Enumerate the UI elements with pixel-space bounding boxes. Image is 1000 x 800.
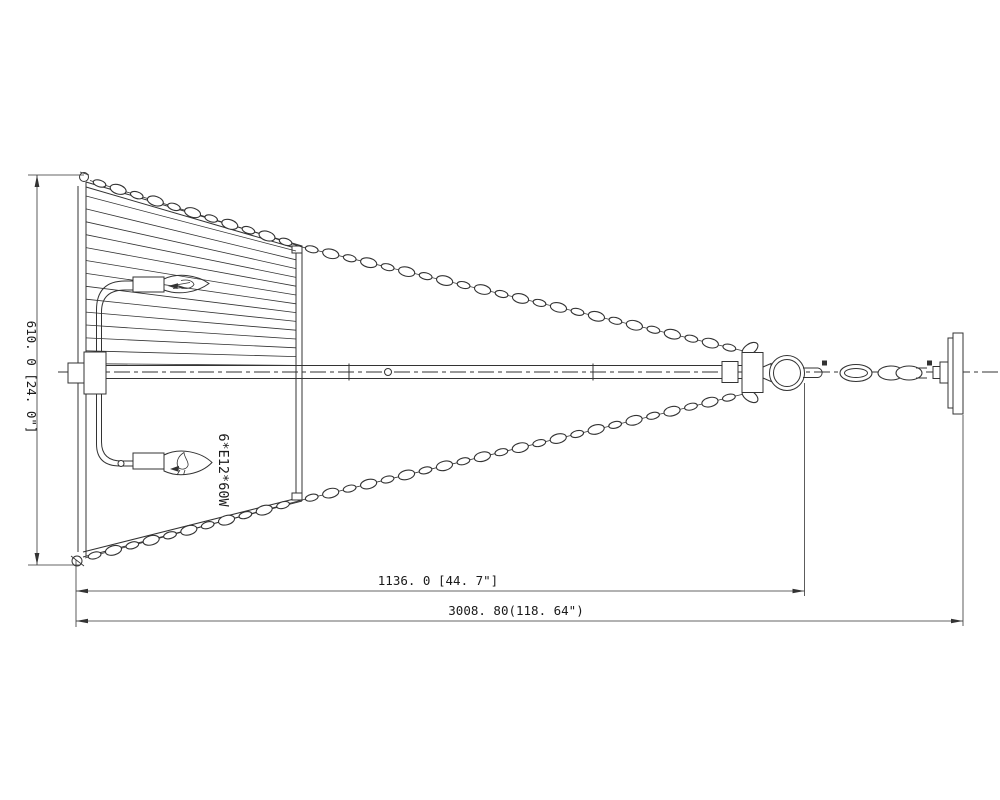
- lower-chain: [302, 393, 748, 503]
- ceiling-canopy: [933, 333, 963, 414]
- chandelier-elevation-drawing: 6*E12*60W 610. 0 [2: [0, 0, 1000, 800]
- candle-bulb-upper: [133, 275, 209, 292]
- canopy-plate: [953, 333, 963, 414]
- bar-left-end-cap: [68, 363, 84, 383]
- upper-chain: [90, 178, 302, 247]
- upper-chain: [302, 245, 748, 353]
- loop-ring: [770, 356, 805, 391]
- candle-bulb-lower: [133, 451, 212, 475]
- lower-arm: [97, 394, 134, 467]
- canopy-ring: [948, 338, 953, 408]
- bulb-socket: [133, 277, 164, 292]
- overall-length-label: 3008. 80(118. 64"): [448, 603, 583, 618]
- bulb-spec-label: 6*E12*60W: [215, 433, 231, 507]
- bulb-socket: [133, 453, 164, 469]
- drawing-canvas: 6*E12*60W 610. 0 [2: [0, 0, 1000, 800]
- bar-end-collar: [722, 362, 738, 383]
- hub-block: [84, 352, 106, 394]
- shade-top-hook: [80, 172, 90, 182]
- hanging-chain: [803, 361, 932, 382]
- arm-elbow-screw: [118, 461, 124, 467]
- canopy-stem: [933, 367, 940, 379]
- chain-yoke: [740, 340, 805, 406]
- height-dimension-label: 610. 0 [24. 0"]: [24, 321, 39, 434]
- bar-screw-hole: [385, 369, 392, 376]
- suspension-length-label: 1136. 0 [44. 7"]: [378, 573, 498, 588]
- left-hub: [68, 352, 106, 394]
- shade-rib-top-cap: [292, 246, 302, 253]
- shade-bottom-hook: [71, 556, 84, 566]
- yoke-block: [742, 353, 763, 393]
- dimension-suspension-length: 1136. 0 [44. 7"]: [76, 383, 805, 627]
- canopy-collar: [940, 362, 948, 383]
- lower-chain: [85, 500, 302, 560]
- shade-rib-bottom-cap: [292, 493, 302, 500]
